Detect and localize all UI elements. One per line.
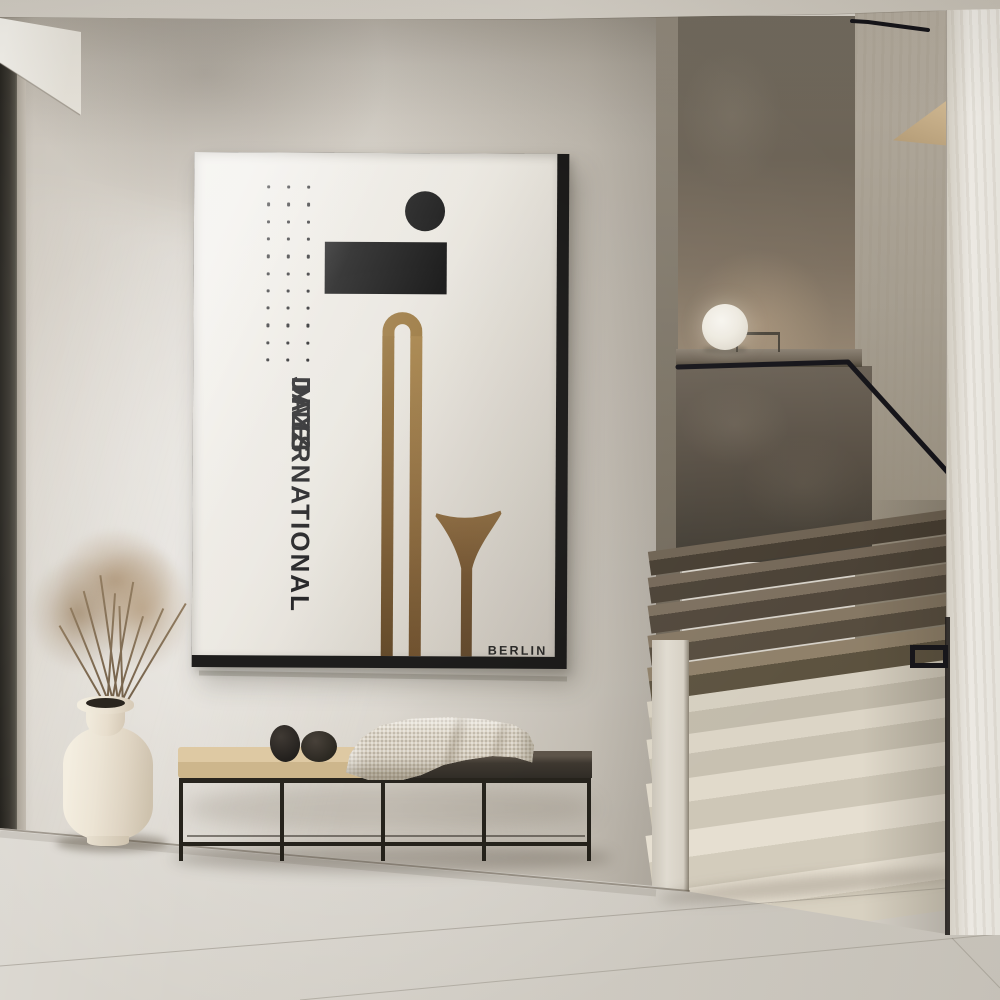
- bench-leg: [280, 783, 284, 861]
- vase-foot: [87, 836, 129, 846]
- floor-seam: [300, 934, 1000, 1000]
- bench-leg: [179, 783, 183, 861]
- bench-bottom-rail: [179, 842, 591, 846]
- upper-handrail: [852, 21, 928, 30]
- floor-seam: [952, 938, 1000, 988]
- bench-back-rail: [187, 835, 585, 837]
- bench-floor-shadow: [172, 844, 612, 872]
- foreground-wall-column: [946, 9, 1000, 935]
- poster-frame: INTERNATIONAL JAZZ DAYS BERLIN: [192, 152, 570, 669]
- bench-leg: [587, 783, 591, 861]
- handrail: [678, 362, 952, 477]
- jazz-poster: INTERNATIONAL JAZZ DAYS BERLIN: [192, 152, 558, 657]
- soffit-edge: [0, 63, 80, 115]
- vase: [63, 726, 153, 840]
- handrail-bracket: [910, 645, 948, 668]
- floor-seam: [0, 884, 996, 966]
- dried-grass: [28, 528, 193, 713]
- bench-leg: [381, 783, 385, 861]
- poster-glass-sheen: [192, 152, 558, 657]
- bench-leg: [482, 783, 486, 861]
- bench-wall-shadow: [185, 782, 595, 834]
- interior-scene: INTERNATIONAL JAZZ DAYS BERLIN: [0, 0, 1000, 1000]
- vase-opening: [86, 698, 125, 708]
- frame-shadow: [199, 673, 567, 679]
- decor-pebble: [301, 731, 337, 762]
